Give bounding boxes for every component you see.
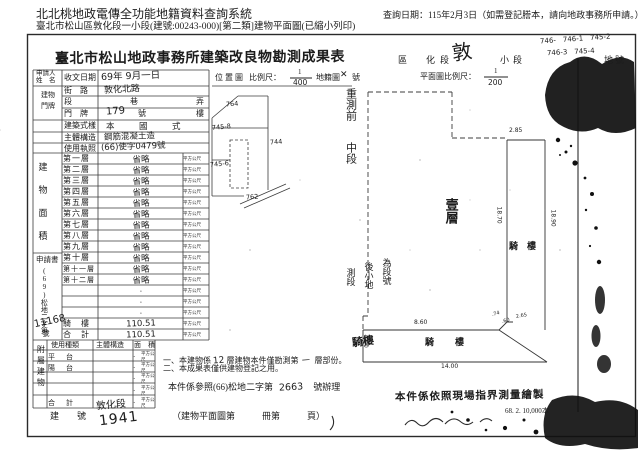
floor-label: 第七層 — [63, 219, 99, 230]
plan-lot-label: 地號 — [604, 56, 626, 65]
land-registry-scan-page: 北北桃地政電傳全功能地籍資料查詢系統 查詢日期：115年2月3日（如需登記謄本，… — [0, 0, 640, 452]
annex-row-value: · — [133, 375, 141, 383]
table-row: 第十層省略平方公尺 — [63, 252, 209, 263]
area-unit: 平方公尺 — [141, 385, 155, 397]
table-row: 第十二層省略平方公尺 — [63, 274, 209, 285]
annex-row-value: · — [133, 399, 141, 407]
form-title: 臺北市松山地政事務所建築改良物勘測成果表 — [55, 51, 345, 68]
note-1-text3: 層部份。 — [314, 356, 346, 365]
door-floor-suffix: 樓 — [196, 110, 204, 118]
cadastral-map-value: ✕ — [340, 71, 348, 80]
dim-bottom-bottom-edge: 14.00 — [441, 364, 458, 370]
area-unit: 平方公尺 — [183, 332, 207, 338]
annex-header-usage: 使用種類 — [51, 342, 79, 349]
floor-label: 第十二層 — [63, 275, 99, 285]
area-unit: 平方公尺 — [183, 167, 207, 173]
dim-strip-left: 18.70 — [495, 207, 501, 224]
area-unit: 平方公尺 — [183, 233, 207, 239]
receipt-date-label: 收文日期 — [64, 74, 96, 82]
scale-numerator: 1 — [298, 69, 302, 76]
door-number-suffix: 號 — [138, 110, 146, 118]
table-row: 合 計110.51平方公尺 — [63, 329, 209, 340]
table-row: 第七層省略平方公尺 — [63, 219, 209, 230]
table-row: 第六層省略平方公尺 — [63, 208, 209, 219]
annex-row-value: · — [133, 353, 141, 361]
floor-label: 合 計 — [63, 329, 99, 340]
table-row: 第二層省略平方公尺 — [63, 164, 209, 175]
annex-group-label: 附屬建物 — [36, 345, 44, 403]
floor-label: 騎 樓 — [63, 318, 99, 329]
plan-small-section-label: 小段 — [500, 56, 526, 65]
table-row: ·平方公尺 — [63, 296, 209, 307]
area-unit: 平方公尺 — [183, 255, 207, 261]
system-title: 北北桃地政電傳全功能地籍資料查詢系統 — [36, 8, 252, 21]
note-3-text: 本件係參照(66)松地二字第 — [168, 382, 273, 392]
mid-section-annotation: 中段 — [345, 142, 357, 172]
table-row: 騎 樓110.51平方公尺 — [63, 318, 209, 329]
scale-denominator: 400 — [293, 79, 307, 87]
table-row: 第九層省略平方公尺 — [63, 241, 209, 252]
area-unit: 平方公尺 — [183, 321, 207, 327]
door-number-value: 179 — [106, 106, 126, 118]
application-number-prefix: (69)松地二字第 — [40, 267, 47, 319]
cadastral-map-suffix: 號 — [352, 74, 360, 82]
floor-label: 第九層 — [63, 241, 99, 252]
lane-label: 段 巷 弄 — [64, 98, 218, 106]
posmap-lot-4: 745-6 — [210, 160, 229, 168]
address-group-label: 建物 — [41, 92, 55, 99]
application-number-suffix: 號 — [42, 330, 50, 338]
street-label: 街 路 — [64, 87, 88, 95]
cadastral-map-label: 地籍圖 — [316, 74, 340, 82]
building-number-label: 建 號 — [50, 412, 86, 421]
area-unit: 平方公尺 — [141, 397, 155, 409]
annex-row-label: 平 台 — [48, 352, 93, 362]
pre-survey-annotation: 重測前 — [345, 88, 357, 132]
annex-row-value: · — [133, 387, 141, 395]
plan-scale-denominator: 200 — [488, 79, 502, 87]
annex-row-label: 陽 台 — [48, 363, 93, 373]
plan-scale-numerator: 1 — [494, 68, 498, 75]
dim-bottom-left-edge: 4.00 — [362, 334, 368, 347]
floor-label: 第一層 — [63, 153, 99, 164]
area-unit: 平方公尺 — [141, 373, 155, 385]
street-value: 敦化北路 — [104, 85, 140, 96]
table-row: ·平方公尺 — [63, 307, 209, 318]
plan-book-reference: （建物平面圖第 冊第 頁） — [172, 412, 325, 421]
posmap-lot-2: 745-8 — [212, 123, 231, 131]
note-1-handwritten-blank: 一 — [302, 357, 311, 366]
plan-section-label: 化段 — [426, 56, 454, 65]
plan-scale-label: 平面圖比例尺： — [420, 73, 476, 81]
area-group-label: 建物面積 — [37, 162, 46, 252]
floor-label: 第十一層 — [63, 264, 99, 274]
note-2: 二、本成果表僅供建物登記之用。 — [163, 365, 283, 373]
annex-header-structure: 主體構造 — [96, 342, 124, 349]
dim-strip-right: 18.90 — [549, 210, 555, 227]
floor-label: 第二層 — [63, 164, 99, 175]
arcade-strip-outline — [499, 140, 545, 330]
scribble-marks — [330, 416, 492, 430]
floor-label: 第五層 — [63, 197, 99, 208]
floor-label: 第八層 — [63, 230, 99, 241]
print-code: 68. 2. 10,000本 — [505, 408, 549, 415]
table-row: 第五層省略平方公尺 — [63, 197, 209, 208]
annex-header-area: 面 積 — [134, 342, 155, 349]
resurvey-annotation-col2: 後小地 — [362, 262, 371, 300]
resurvey-annotation-col3: 為段號 — [380, 258, 389, 298]
address-group-label2: 門牌 — [41, 103, 55, 110]
table-row: 第十一層省略平方公尺 — [63, 263, 209, 274]
query-date: 查詢日期：115年2月3日（如需登記謄本，請向地政事務所申請。） — [383, 11, 640, 20]
area-unit: 平方公尺 — [183, 266, 207, 272]
note-3-text2: 號辦理 — [313, 382, 340, 392]
arcade-bottom-label: 騎 樓 — [425, 339, 470, 348]
table-row: 第三層省略平方公尺 — [63, 175, 209, 186]
floor-value: 110.51 — [99, 328, 183, 341]
posmap-lot-5: 762 — [246, 193, 259, 201]
table-row: 平 台·平方公尺 — [48, 351, 155, 362]
document-subtitle: 臺北市松山區敦化段一小段(建號:00243-000)[第二類]建物平面圖(已縮小… — [36, 23, 355, 33]
table-row: ·平方公尺 — [48, 373, 155, 384]
area-unit: 平方公尺 — [183, 156, 207, 162]
dim-strip-width: 2.85 — [509, 128, 522, 134]
area-unit: 平方公尺 — [183, 189, 207, 195]
table-row: ·平方公尺 — [48, 385, 155, 396]
area-unit: 平方公尺 — [183, 244, 207, 250]
area-unit: 平方公尺 — [183, 222, 207, 228]
application-label: 申請書 — [36, 256, 59, 264]
dim-bottom-top-edge: 8.60 — [414, 320, 427, 326]
plan-section-handwritten: 敦 — [450, 41, 473, 65]
table-row: 第四層省略平方公尺 — [63, 186, 209, 197]
applicant-label2: 姓 名 — [36, 78, 56, 85]
area-unit: 平方公尺 — [183, 211, 207, 217]
table-row: 第八層省略平方公尺 — [63, 230, 209, 241]
building-style-label: 建築式樣 — [64, 122, 96, 130]
area-unit: 平方公尺 — [183, 200, 207, 206]
posmap-lot-1: 764 — [226, 100, 239, 108]
area-unit: 平方公尺 — [183, 299, 207, 305]
floor-label: 第十層 — [63, 252, 99, 263]
floor-label: 第三層 — [63, 175, 99, 186]
resurvey-annotation-col1: 測段 — [344, 268, 353, 294]
arcade-strip-label: 騎 樓 — [509, 243, 536, 252]
posmap-lot-3: 744 — [270, 138, 283, 146]
annex-row-value: · — [133, 364, 141, 372]
floor-label: 第六層 — [63, 208, 99, 219]
table-row: 第一層省略平方公尺 — [63, 153, 209, 164]
position-map-sketch — [212, 96, 290, 208]
area-unit: 平方公尺 — [183, 178, 207, 184]
location-map-label: 位置圖 — [215, 74, 245, 82]
table-row: 陽 台·平方公尺 — [48, 362, 155, 373]
plan-district-label: 區 — [398, 56, 407, 65]
floor-label: 第四層 — [63, 186, 99, 197]
area-unit: 平方公尺 — [183, 288, 207, 294]
door-label: 門 牌 — [64, 110, 88, 118]
first-floor-annotation: 壹層 — [443, 198, 457, 248]
note-3-case-number: 2663 — [279, 382, 304, 393]
structure-label: 主體構造 — [64, 134, 96, 142]
annex-row-label: 合 計 — [48, 398, 93, 408]
area-unit: 平方公尺 — [183, 310, 207, 316]
scale-label: 比例尺： — [249, 74, 281, 82]
note-3: 本件係參照(66)松地二字第2663號辦理 — [168, 378, 340, 395]
building-style-value: 本 國 式 — [106, 122, 189, 131]
receipt-date-value: 69年 9月一日 — [101, 71, 160, 83]
table-row: ·平方公尺 — [63, 285, 209, 296]
area-unit: 平方公尺 — [183, 277, 207, 283]
